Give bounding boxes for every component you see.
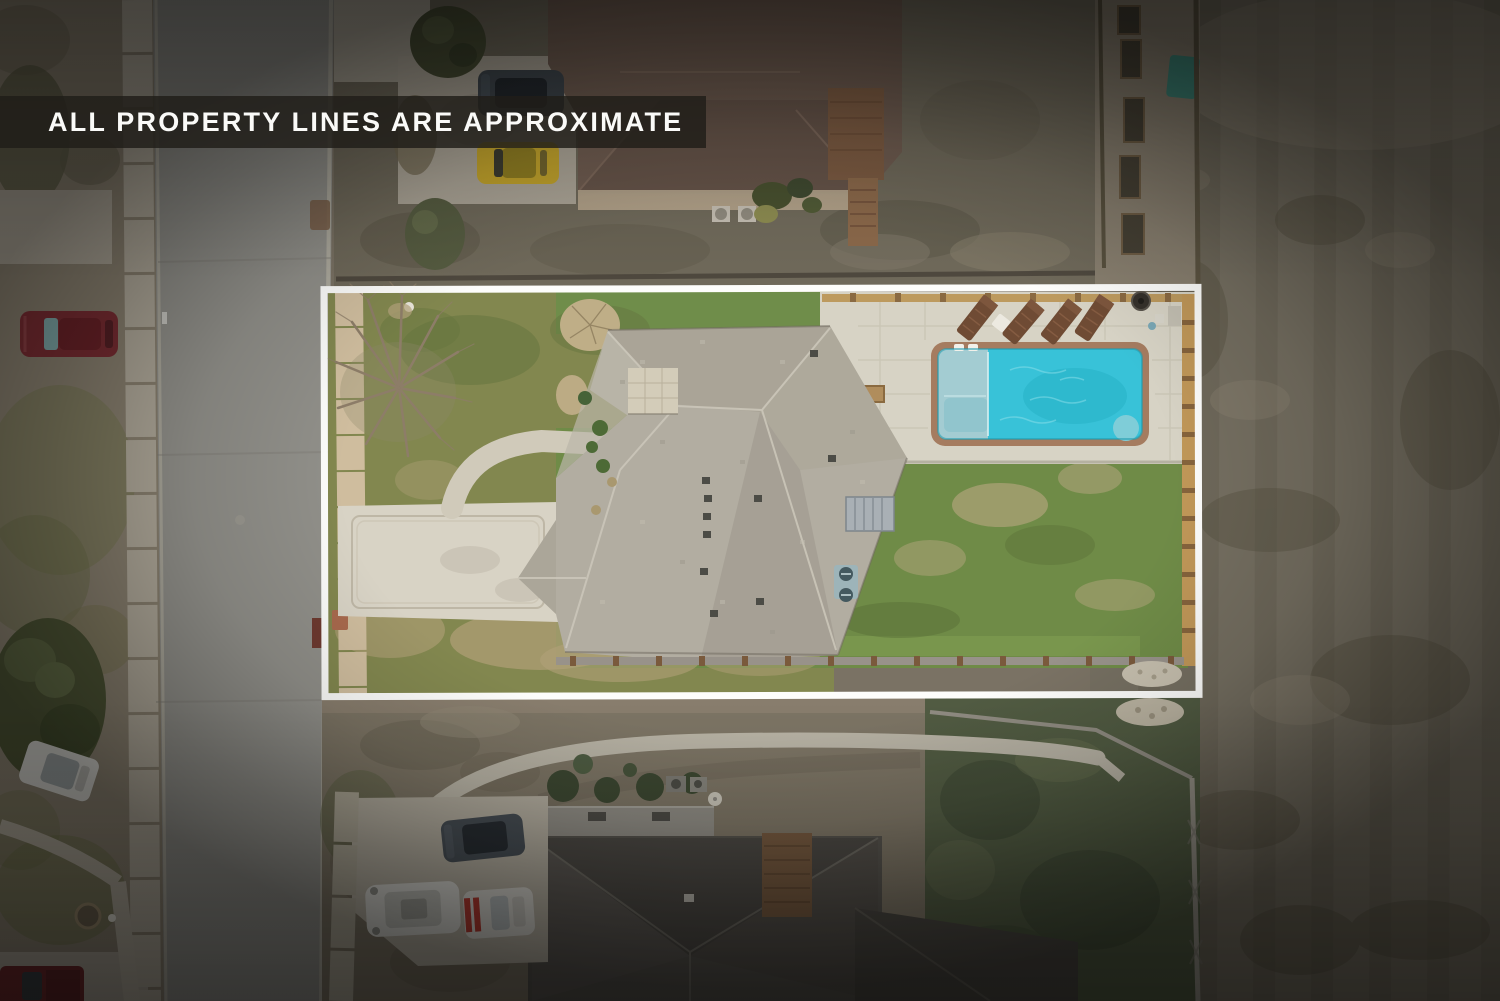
ac-units <box>834 565 858 602</box>
rock-pile <box>1116 698 1184 726</box>
porch-roof <box>548 806 714 838</box>
aerial-scene <box>0 0 1500 1001</box>
garden-strip <box>1095 0 1200 286</box>
subject-driveway <box>338 502 558 622</box>
west-sidewalk <box>137 0 146 1001</box>
fence <box>1196 0 1198 284</box>
storm-drain <box>310 200 330 230</box>
pool <box>931 342 1149 446</box>
maroon-truck <box>0 966 84 1001</box>
sidewalk <box>349 292 353 696</box>
subject-property <box>312 282 1198 698</box>
road-paint <box>162 312 167 324</box>
stone-ring <box>76 904 100 928</box>
concrete-pad <box>0 190 112 264</box>
corner-step <box>1113 415 1139 441</box>
yellow-car <box>477 142 559 184</box>
tree <box>405 198 465 270</box>
rear-pergola <box>846 497 894 531</box>
disclaimer-banner: ALL PROPERTY LINES ARE APPROXIMATE <box>0 96 706 148</box>
tree <box>410 6 486 78</box>
rock-pile <box>1122 661 1182 687</box>
left-parcel <box>0 0 172 1001</box>
dark-sedan <box>440 813 526 863</box>
white-minivan <box>365 881 462 938</box>
street <box>153 0 334 1001</box>
aerial-property-photo: ALL PROPERTY LINES ARE APPROXIMATE <box>0 0 1500 1001</box>
maroon-car <box>20 311 118 357</box>
shrub <box>752 182 792 210</box>
white-coupe-red-stripes <box>462 887 535 940</box>
wood-deck <box>762 833 812 917</box>
manhole <box>235 515 245 525</box>
entry-courtyard <box>628 368 678 414</box>
disclaimer-text: ALL PROPERTY LINES ARE APPROXIMATE <box>48 107 683 138</box>
